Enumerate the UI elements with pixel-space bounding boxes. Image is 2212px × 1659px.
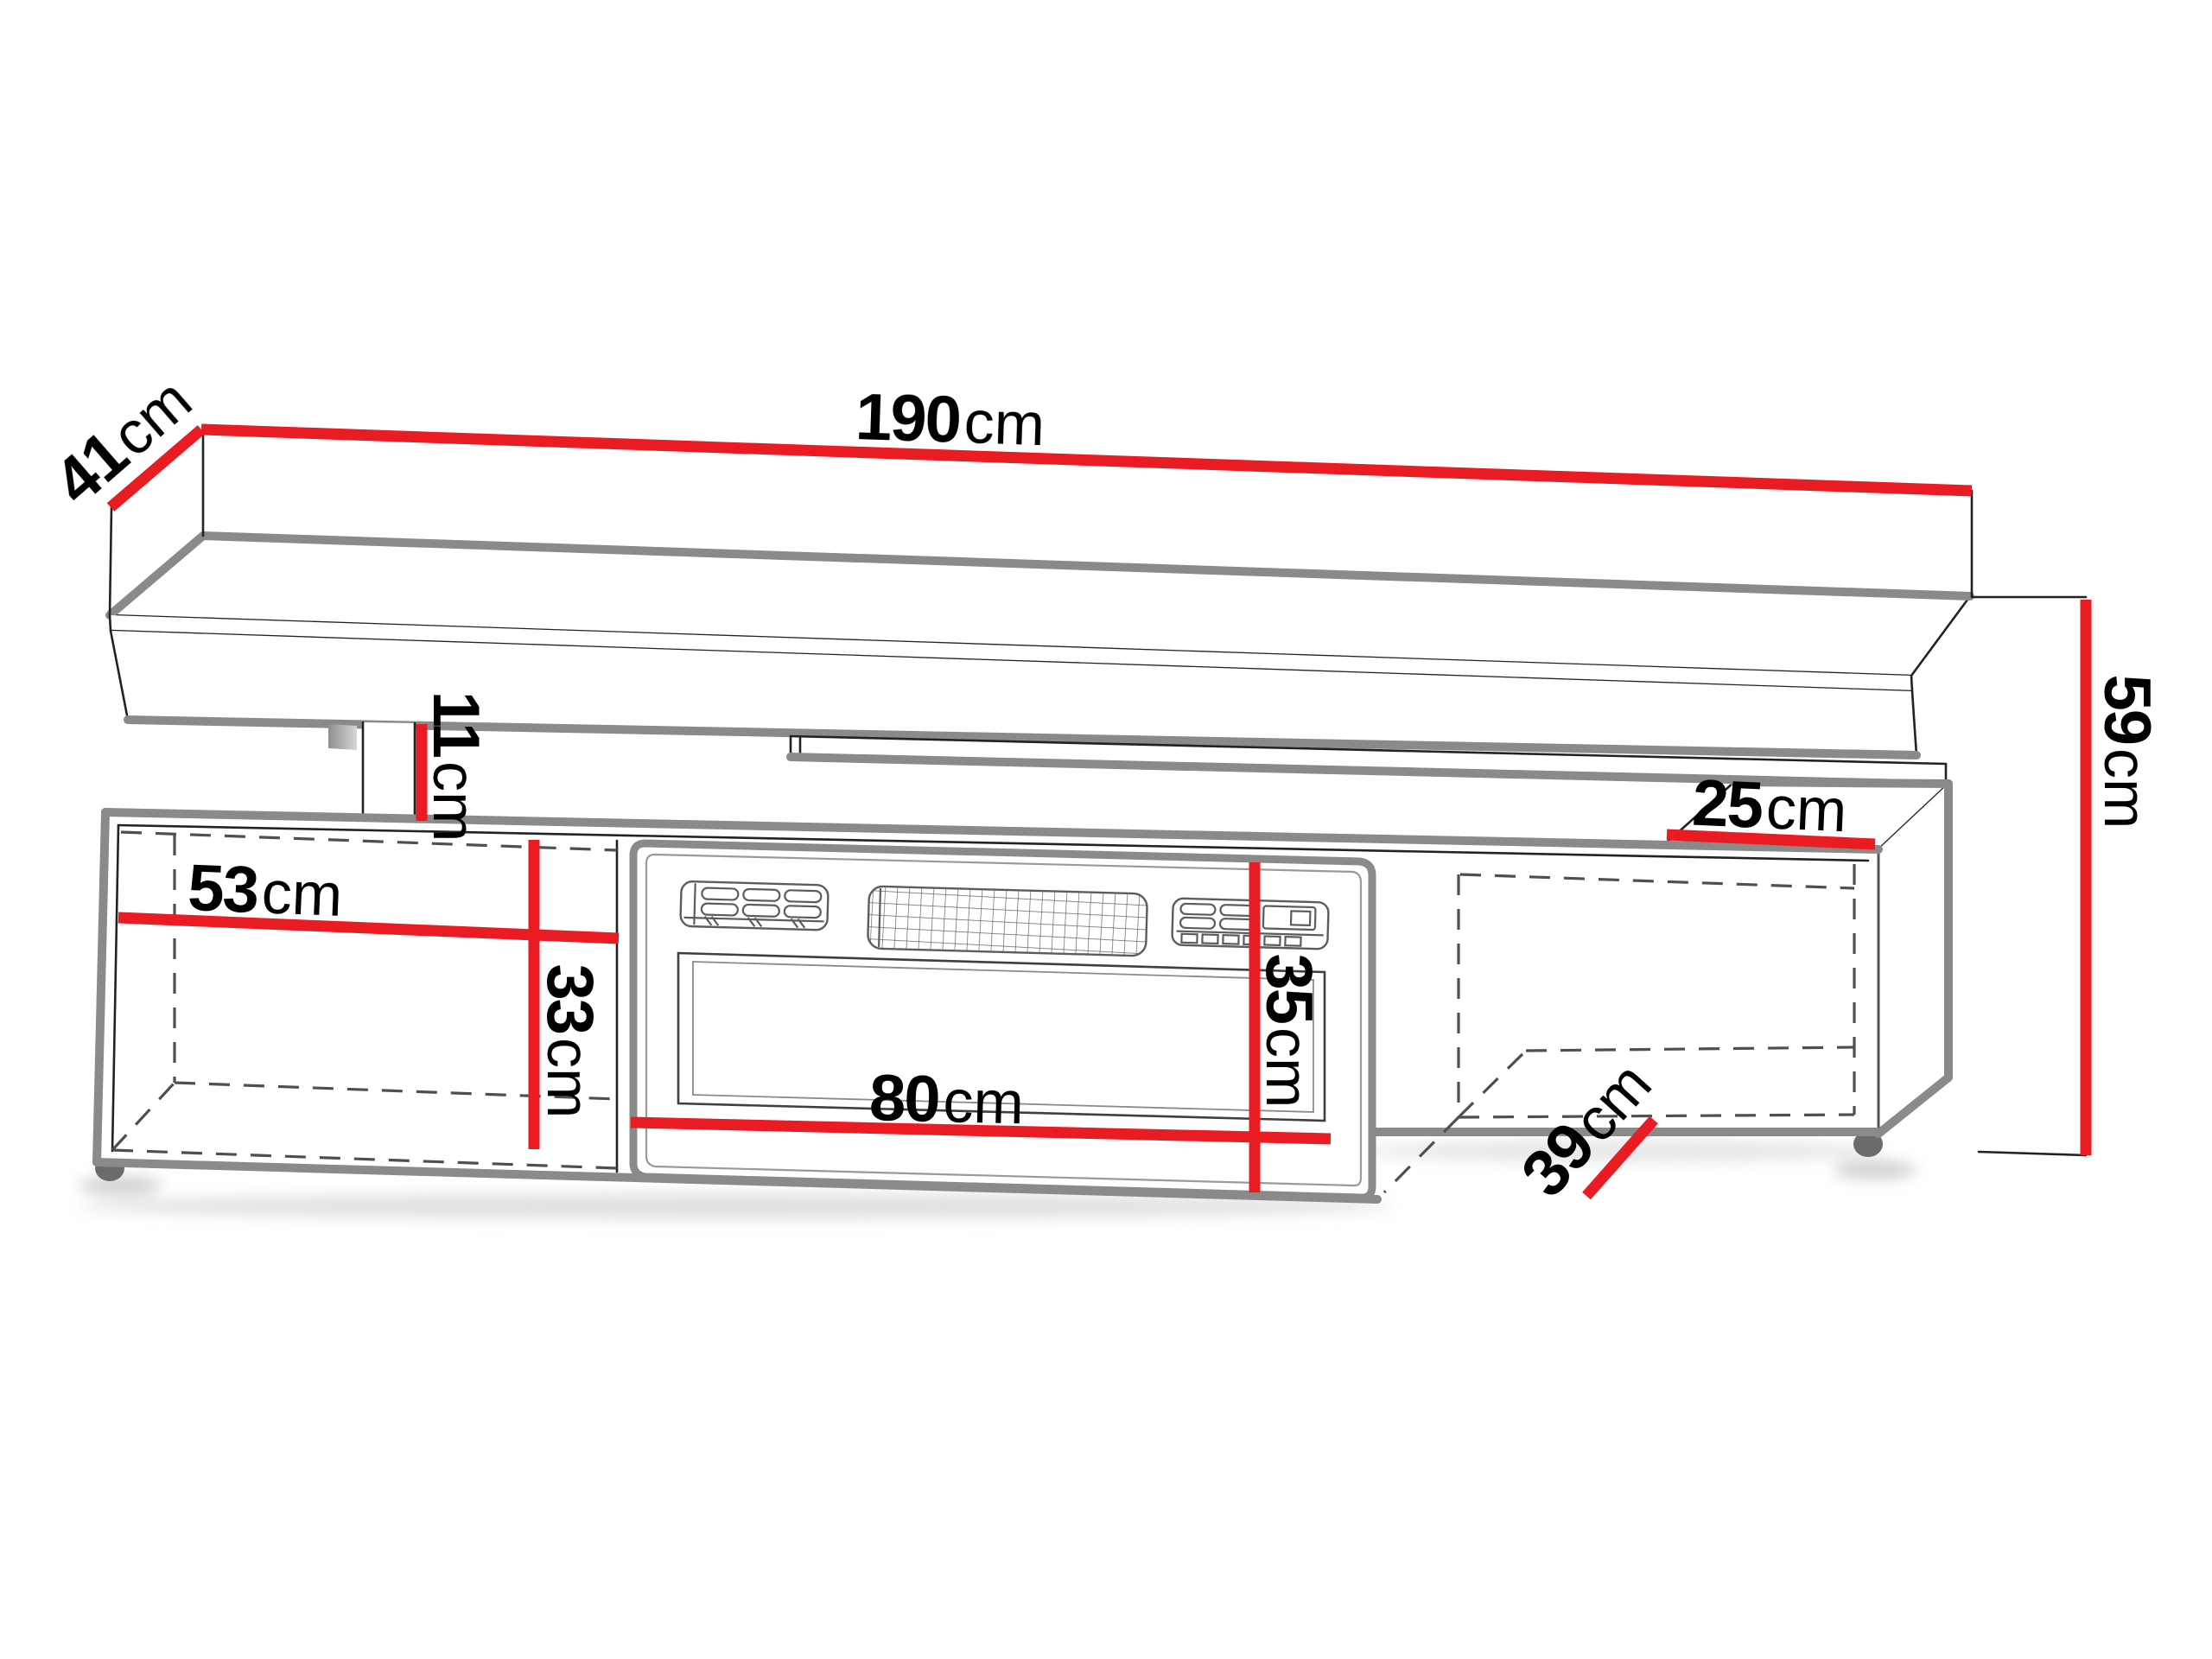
- dim-label-59: 59 cm: [2090, 674, 2164, 829]
- svg-text:cm: cm: [963, 388, 1046, 458]
- svg-text:11: 11: [419, 691, 493, 758]
- svg-text:cm: cm: [2092, 748, 2159, 829]
- svg-text:35: 35: [1252, 953, 1325, 1023]
- svg-text:59: 59: [2090, 674, 2164, 744]
- svg-text:cm: cm: [421, 761, 488, 842]
- svg-text:80: 80: [868, 1061, 940, 1136]
- svg-text:25: 25: [1691, 766, 1764, 842]
- dim-label-80: 80 cm: [868, 1061, 1025, 1138]
- svg-text:33: 33: [533, 963, 607, 1033]
- dim-label-35: 35 cm: [1252, 953, 1325, 1108]
- mesh-vent-icon: [868, 887, 1147, 957]
- svg-text:cm: cm: [260, 858, 343, 929]
- left-vent-icon: [680, 881, 828, 931]
- gap-connector-panel: [363, 722, 415, 822]
- dim-line-190: [201, 429, 1972, 491]
- gap-shadow-sliver: [328, 724, 357, 750]
- dim-label-53: 53 cm: [187, 851, 344, 931]
- svg-text:cm: cm: [1254, 1027, 1321, 1108]
- dim-label-33: 33 cm: [533, 963, 607, 1118]
- svg-text:53: 53: [187, 851, 259, 927]
- wall-shelf: [110, 536, 1970, 755]
- dim-label-190: 190 cm: [855, 380, 1046, 460]
- furniture-dimension-diagram: 190 cm 41 cm 11 cm 53 cm 33 cm 80 cm 35 …: [0, 0, 2212, 1659]
- dim-label-11: 11 cm: [419, 691, 493, 842]
- dim-label-25: 25 cm: [1691, 766, 1848, 847]
- svg-text:cm: cm: [535, 1038, 602, 1118]
- svg-text:190: 190: [855, 380, 962, 457]
- page: { "diagram": { "type": "furniture-dimens…: [0, 0, 2212, 1659]
- svg-text:cm: cm: [1764, 773, 1848, 844]
- svg-text:cm: cm: [943, 1067, 1025, 1136]
